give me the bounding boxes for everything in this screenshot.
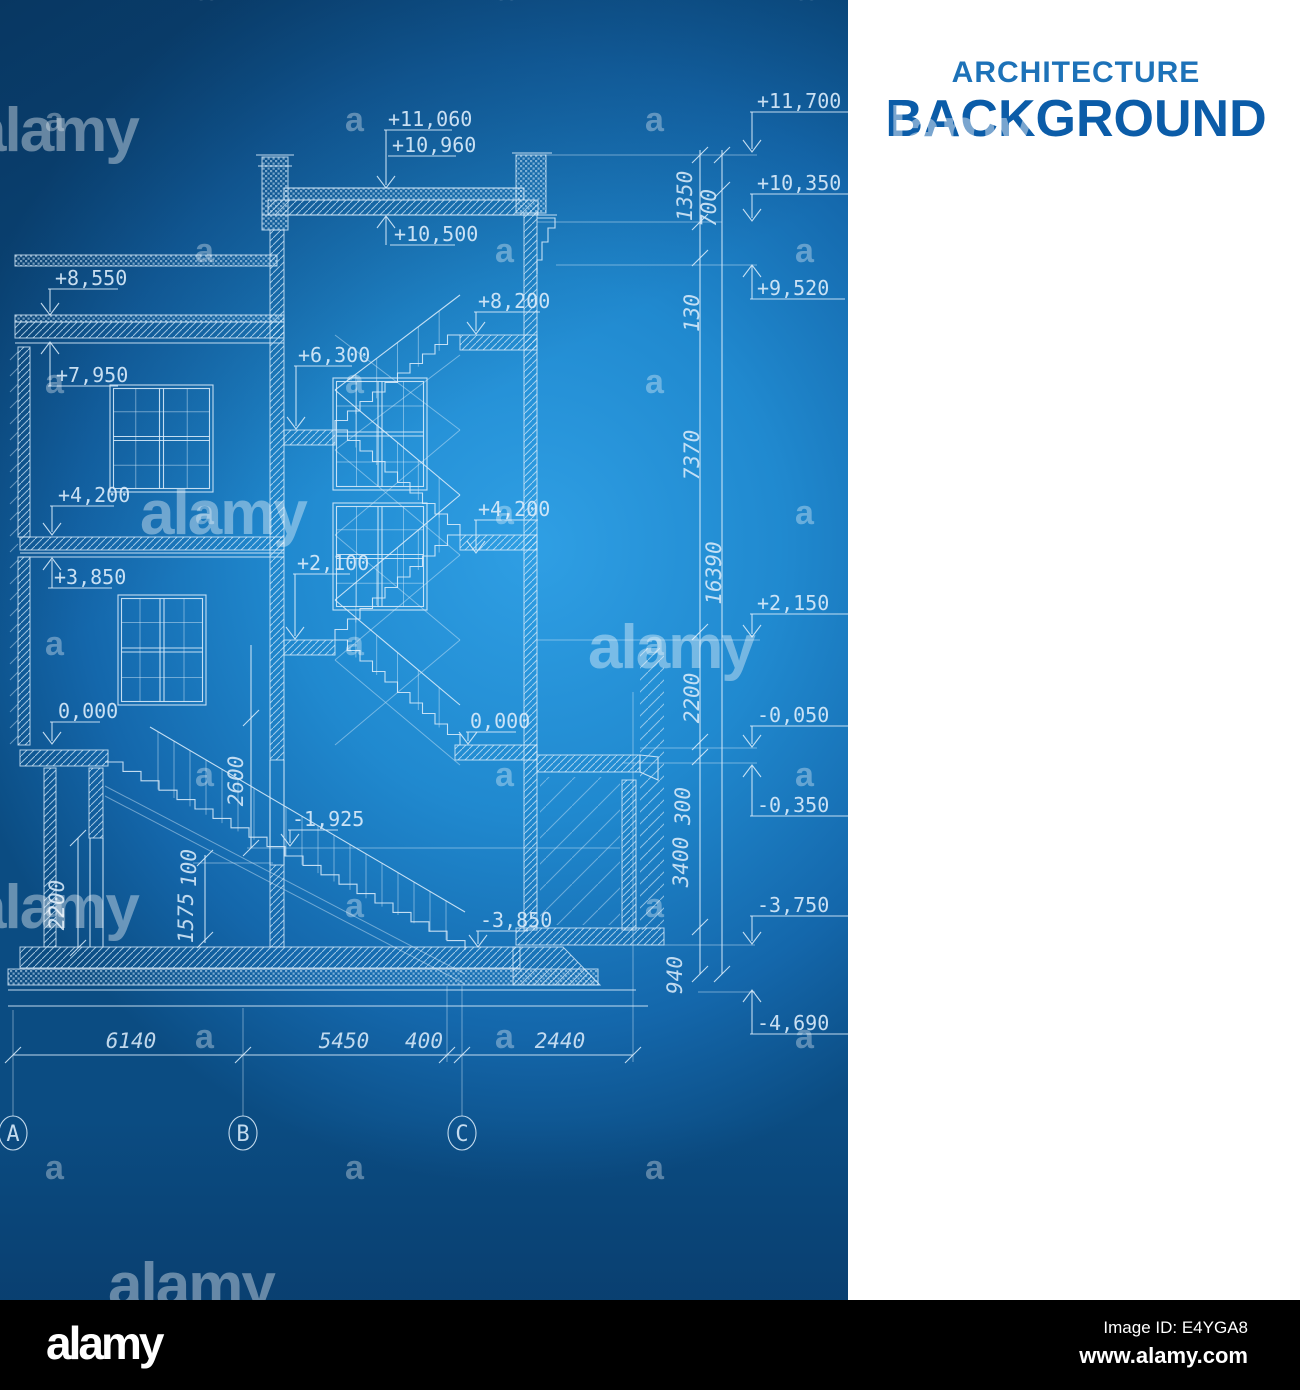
foundation	[8, 947, 648, 1006]
drawing-label: +10,960	[392, 133, 476, 157]
alamy-logo: alamy	[46, 1316, 161, 1370]
drawing-label: -4,690	[757, 1011, 829, 1035]
left-roof-insulation	[15, 315, 284, 322]
drawing-label: +3,850	[54, 565, 126, 589]
drawing-label: -0,350	[757, 793, 829, 817]
tower-roof-insulation	[284, 188, 524, 200]
drawing-label: 2200	[680, 673, 704, 724]
wall-tick	[10, 448, 18, 456]
wall-tick	[10, 496, 18, 504]
drawing-label: 5450	[319, 1029, 370, 1053]
drawing-label: +10,350	[757, 171, 841, 195]
drawing-label: 1575	[174, 893, 198, 944]
landing-8200	[460, 335, 537, 350]
pit-wall	[622, 780, 636, 930]
footer-bar: alamy Image ID: E4YGA8 www.alamy.com	[0, 1300, 1300, 1390]
tower-left-wall-foundation	[270, 865, 284, 947]
ground-slab	[20, 750, 108, 766]
drawing-label: C	[455, 1122, 468, 1147]
left-outer-wall-lower	[18, 557, 30, 745]
wall-tick	[10, 672, 18, 680]
basement-stair-steps	[105, 762, 465, 950]
left-outer-wall-upper	[18, 347, 30, 537]
wall-tick	[10, 576, 18, 584]
drawing-label: +7,950	[56, 363, 128, 387]
title-line2: BACKGROUND	[852, 93, 1300, 145]
drawing-label: +9,520	[757, 276, 829, 300]
window	[110, 385, 213, 492]
pit-backfill-hatch	[540, 777, 620, 925]
drawing-label: 400	[405, 1029, 443, 1053]
tower-left-wall	[270, 230, 284, 760]
wall-tick	[10, 560, 18, 568]
building-section-drawing: +11,060+10,960+10,500+8,550+7,950+4,200+…	[0, 0, 848, 1300]
wall-tick	[10, 384, 18, 392]
tower-roof-slab	[268, 200, 538, 215]
wall-tick	[10, 480, 18, 488]
drawing-label: +2,150	[757, 591, 829, 615]
left-roof-slab	[15, 322, 284, 338]
foundation-bed	[8, 969, 598, 985]
wall-tick	[10, 352, 18, 360]
wall-tick	[10, 736, 18, 744]
tower-right-wall	[524, 213, 537, 930]
drawing-label: 700	[697, 189, 721, 227]
window	[118, 595, 206, 705]
wall-tick	[10, 512, 18, 520]
wall-tick	[10, 592, 18, 600]
drawing-label: -1,925	[292, 807, 364, 831]
foundation-slab	[20, 947, 520, 968]
earth-hatch	[640, 648, 664, 930]
drawing-label: 0,000	[470, 709, 530, 733]
left-roof-parapet-strip	[15, 255, 277, 266]
drawing-label: 2200	[45, 880, 69, 931]
wall-tick	[10, 464, 18, 472]
right-wing	[516, 648, 664, 945]
drawing-label: +11,060	[388, 107, 472, 131]
wall-tick	[10, 416, 18, 424]
wall-tick	[10, 368, 18, 376]
drawing-label: 2440	[535, 1029, 586, 1053]
drawing-label: A	[6, 1122, 19, 1147]
left-building	[15, 255, 284, 947]
drawing-label: 1350	[673, 171, 697, 222]
mid-floor-slab	[20, 537, 284, 550]
drawing-label: 7370	[680, 430, 704, 481]
title-block: ARCHITECTURE BACKGROUND	[852, 56, 1300, 145]
drawing-label: +10,500	[394, 222, 478, 246]
wall-tick	[10, 624, 18, 632]
drawing-label: +4,200	[58, 483, 130, 507]
drawing-annotations: +11,060+10,960+10,500+8,550+7,950+4,200+…	[0, 89, 848, 1150]
wall-tick	[10, 720, 18, 728]
wall-tick	[10, 400, 18, 408]
drawing-label: +8,200	[478, 289, 550, 313]
wall-tick	[10, 432, 18, 440]
drawing-label: -3,850	[480, 908, 552, 932]
wall-tick	[10, 528, 18, 536]
drawing-label: +11,700	[757, 89, 841, 113]
drawing-label: 16390	[702, 541, 726, 604]
drawing-label: 940	[663, 956, 687, 994]
landing-2100	[284, 640, 335, 655]
alamy-url: www.alamy.com	[1079, 1343, 1248, 1369]
blueprint-panel: +11,060+10,960+10,500+8,550+7,950+4,200+…	[0, 0, 848, 1300]
drawing-label: 2600	[224, 756, 248, 807]
drawing-label: 130	[680, 294, 704, 332]
wall-tick	[10, 544, 18, 552]
stock-image-page: { "title": { "line1": "ARCHITECTURE", "l…	[0, 0, 1300, 1390]
drawing-label: B	[236, 1122, 249, 1147]
drawing-label: 6140	[106, 1029, 157, 1053]
drawing-label: 3400	[669, 837, 693, 889]
drawing-label: +2,100	[297, 551, 369, 575]
wall-tick	[10, 608, 18, 616]
title-line1: ARCHITECTURE	[852, 56, 1300, 90]
image-id: Image ID: E4YGA8	[1079, 1318, 1248, 1338]
drawing-label: +4,200	[478, 497, 550, 521]
drawing-label: 300	[671, 787, 695, 826]
wall-tick	[10, 640, 18, 648]
drawing-label: -3,750	[757, 893, 829, 917]
wall-tick	[10, 688, 18, 696]
landing-6300	[284, 430, 335, 445]
wall-tick	[10, 704, 18, 712]
cornice-profile	[537, 218, 555, 274]
porch-pillar	[89, 768, 103, 838]
drawing-label: +8,550	[55, 266, 127, 290]
footer-info: Image ID: E4YGA8 www.alamy.com	[1079, 1318, 1248, 1369]
drawing-label: -0,050	[757, 703, 829, 727]
drawing-label: +6,300	[298, 343, 370, 367]
drawing-label: 100	[177, 849, 201, 887]
wall-tick	[10, 656, 18, 664]
drawing-label: 0,000	[58, 699, 118, 723]
landing-ground	[455, 745, 537, 760]
